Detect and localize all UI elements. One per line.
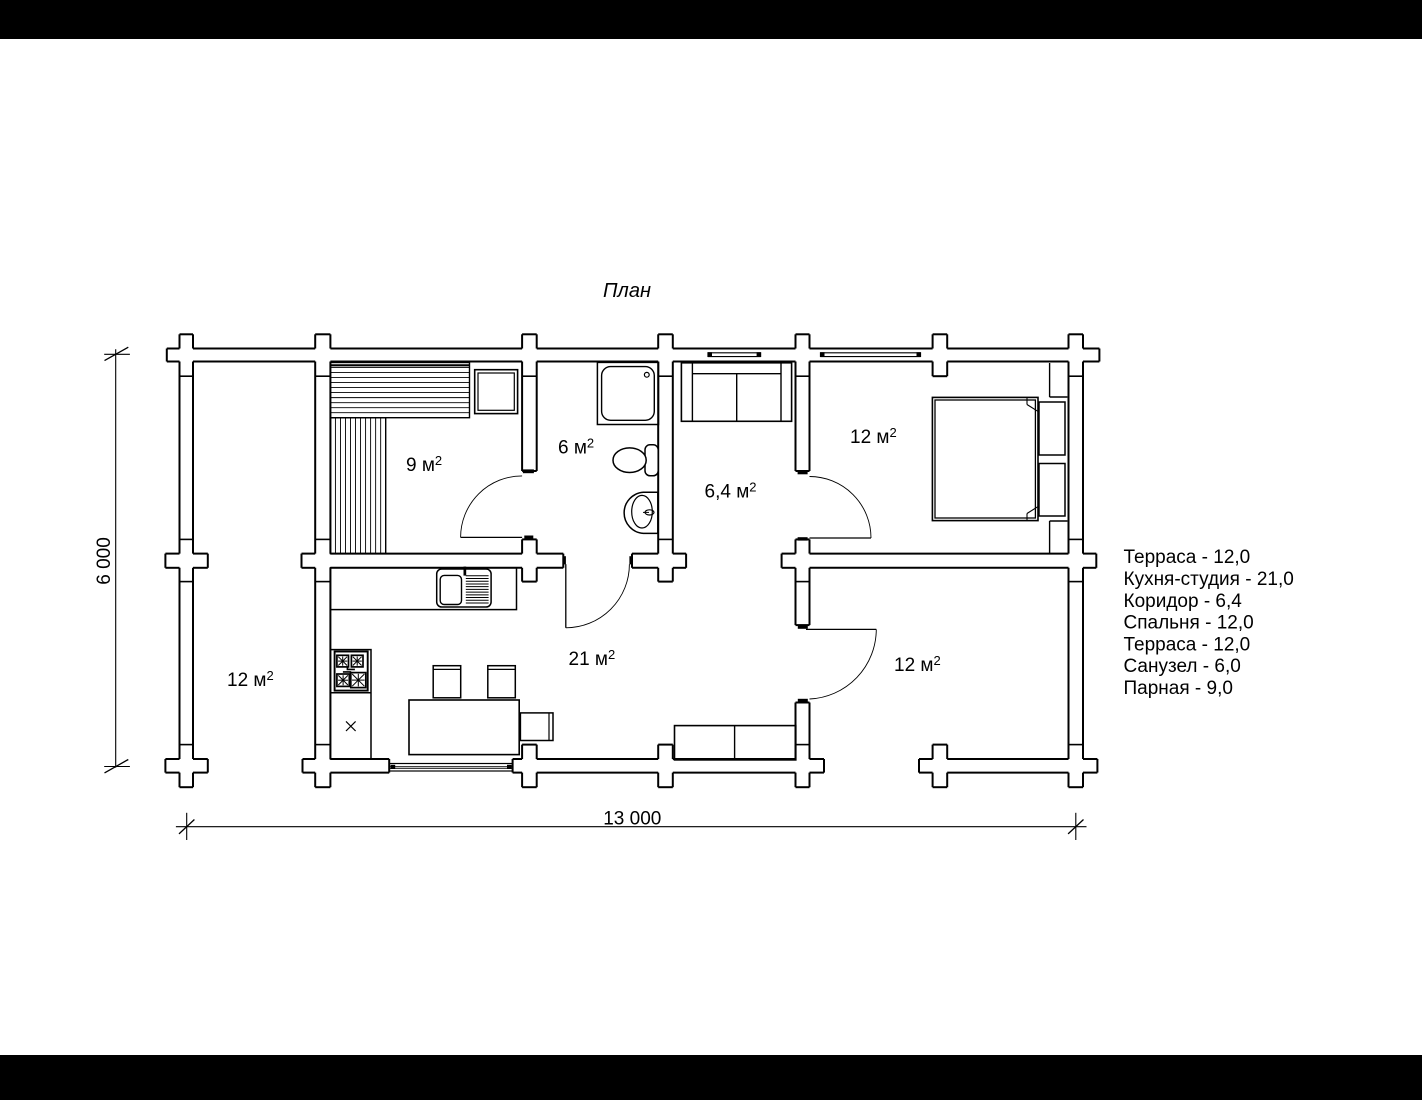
svg-text:21 м2: 21 м2	[569, 647, 616, 670]
svg-text:Терраса - 12,0: Терраса - 12,0	[1124, 547, 1251, 568]
svg-text:12 м2: 12 м2	[894, 653, 941, 676]
svg-text:Парная - 9,0: Парная - 9,0	[1124, 678, 1233, 699]
svg-text:9 м2: 9 м2	[406, 453, 442, 476]
svg-text:6 000: 6 000	[94, 537, 115, 585]
svg-text:Санузел - 6,0: Санузел - 6,0	[1124, 656, 1241, 677]
svg-text:13 000: 13 000	[603, 808, 661, 829]
svg-text:Спальня - 12,0: Спальня - 12,0	[1124, 613, 1254, 634]
svg-text:6,4 м2: 6,4 м2	[705, 480, 757, 503]
svg-text:6 м2: 6 м2	[558, 436, 594, 459]
svg-text:12 м2: 12 м2	[850, 425, 897, 448]
svg-text:Терраса - 12,0: Терраса - 12,0	[1124, 634, 1251, 655]
svg-text:Кухня-студия - 21,0: Кухня-студия - 21,0	[1124, 569, 1294, 590]
svg-text:12 м2: 12 м2	[227, 668, 274, 691]
svg-text:Коридор - 6,4: Коридор - 6,4	[1124, 591, 1243, 612]
svg-text:План: План	[603, 280, 651, 302]
